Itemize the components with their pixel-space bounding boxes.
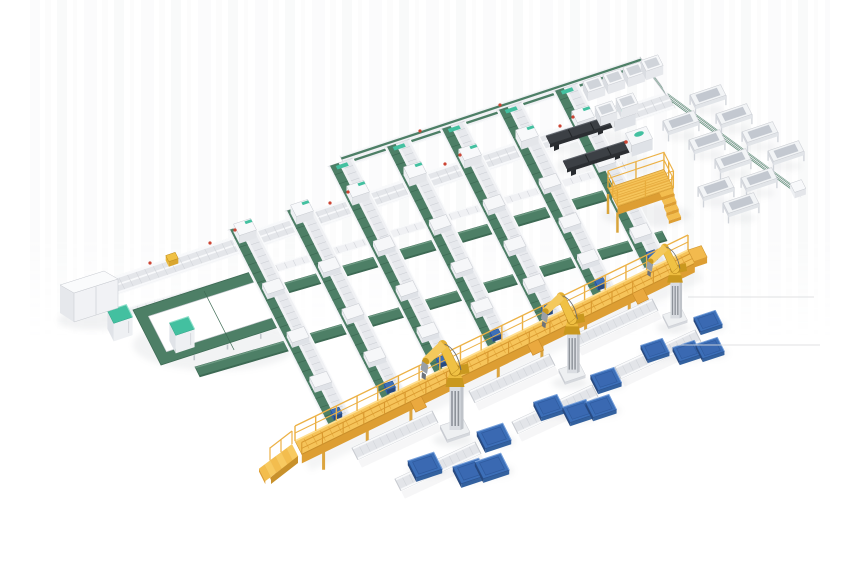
facility-render	[0, 0, 860, 580]
head-beacon	[233, 228, 236, 231]
sensor-beacon	[148, 261, 151, 264]
sensor-beacon	[498, 103, 501, 106]
sensor-beacon	[328, 201, 331, 204]
render-stripe-artifacts	[30, 0, 830, 335]
control-cabinet	[169, 317, 194, 354]
scene-root	[0, 0, 860, 580]
head-beacon	[571, 115, 574, 118]
sensor-beacon	[418, 129, 421, 132]
sensor-beacon	[208, 241, 211, 244]
sensor-beacon	[558, 124, 561, 127]
head-beacon	[346, 190, 349, 193]
sensor-beacon	[443, 162, 446, 165]
head-beacon	[458, 153, 461, 156]
facility-render-stage	[0, 0, 860, 580]
